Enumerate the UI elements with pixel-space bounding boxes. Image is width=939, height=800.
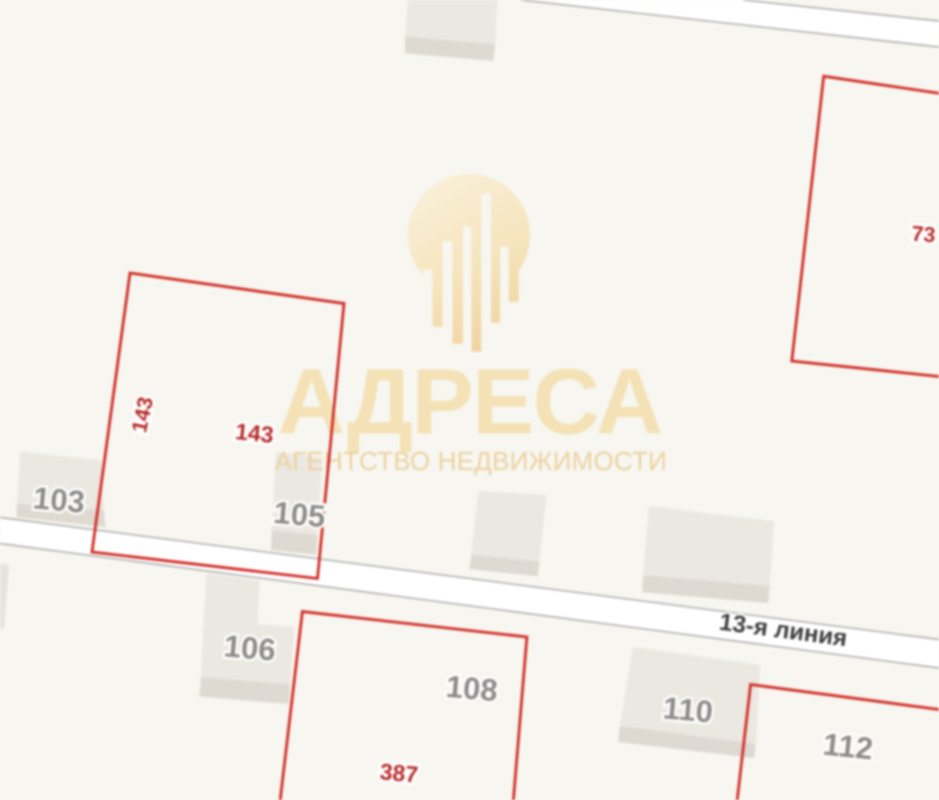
svg-text:387: 387 [379,758,419,787]
svg-text:112: 112 [821,726,874,766]
svg-text:110: 110 [662,690,715,729]
svg-text:143: 143 [234,418,275,448]
svg-text:108: 108 [445,669,500,708]
svg-text:73: 73 [911,222,937,248]
svg-text:АГЕНТСТВО НЕДВИЖИМОСТИ: АГЕНТСТВО НЕДВИЖИМОСТИ [275,446,667,476]
svg-text:105: 105 [272,495,327,534]
svg-text:106: 106 [223,628,278,667]
svg-text:103: 103 [32,480,87,519]
